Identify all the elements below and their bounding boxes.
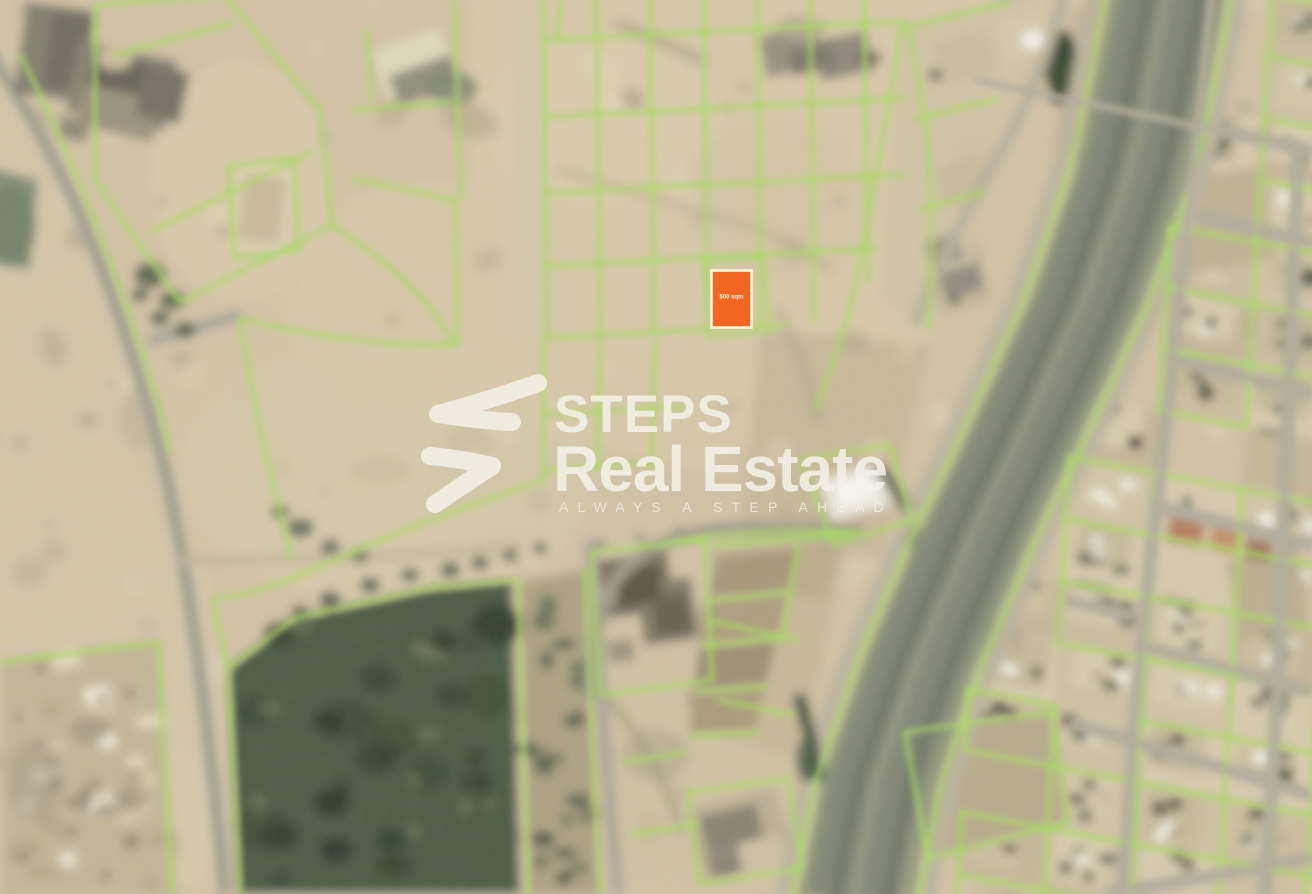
svg-text:ALWAYS A STEP AHEAD: ALWAYS A STEP AHEAD xyxy=(559,499,893,515)
svg-text:Real Estate: Real Estate xyxy=(553,433,887,505)
svg-text:500 sqm: 500 sqm xyxy=(719,295,743,301)
